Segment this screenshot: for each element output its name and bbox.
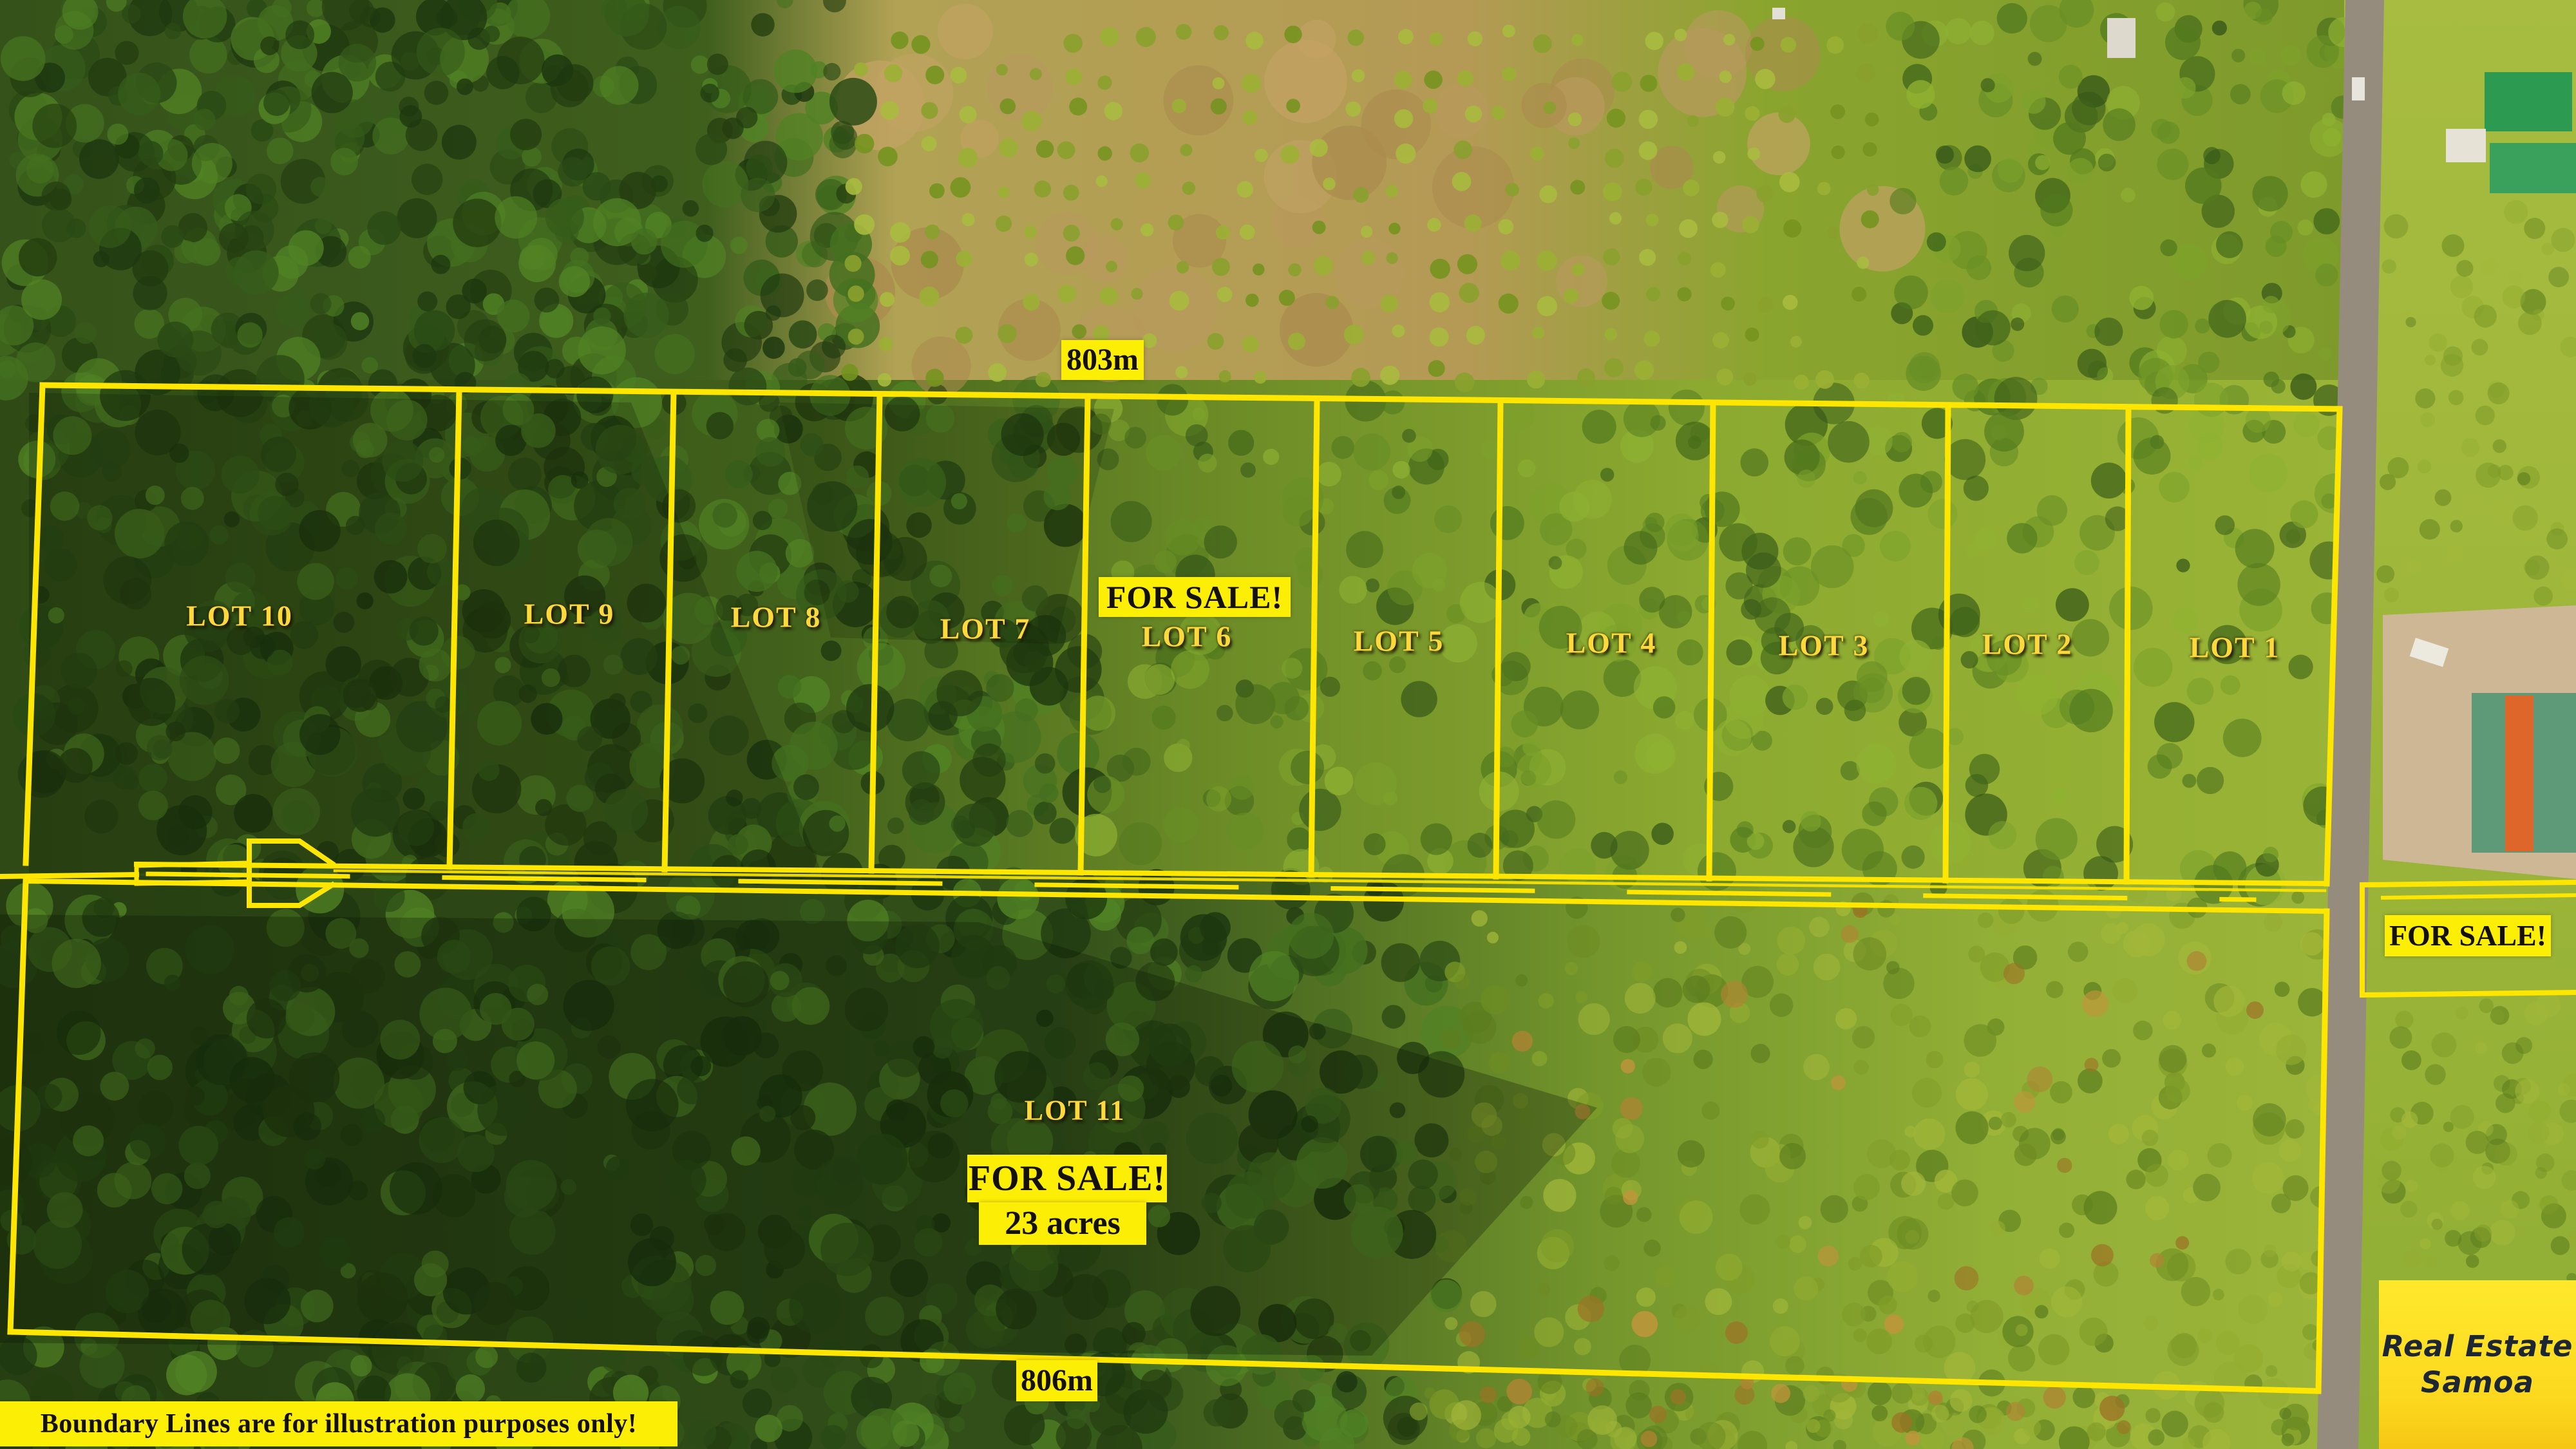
roadside-for-sale-banner: FOR SALE! [2385, 915, 2551, 956]
lot-6-label: LOT 6 [1142, 620, 1233, 654]
building-roof-3 [1772, 8, 1785, 19]
building-roof [2446, 129, 2486, 162]
aerial-photo: 803m 806m LOT 10 LOT 9 LOT 8 LOT 7 LOT 6… [0, 0, 2576, 1449]
lot-5-label: LOT 5 [1354, 624, 1444, 658]
lot-11-label: LOT 11 [1025, 1094, 1126, 1127]
lot-11-area-label: 23 acres [979, 1202, 1146, 1245]
building-orange-stripe [2505, 696, 2533, 851]
lot-7-label: LOT 7 [940, 612, 1031, 646]
sports-field [2485, 72, 2572, 131]
boundary-disclaimer: Boundary Lines are for illustration purp… [0, 1401, 677, 1446]
brand-name-line1: Real Estate [2382, 1329, 2573, 1365]
lot-6-for-sale-banner: FOR SALE! [1099, 577, 1291, 617]
lot-8-label: LOT 8 [731, 600, 822, 634]
brand-name-line2: Samoa [2421, 1365, 2534, 1401]
lot-2-label: LOT 2 [1982, 627, 2073, 661]
building-roof-2 [2107, 18, 2136, 58]
lot-10-label: LOT 10 [186, 599, 293, 633]
lot-11-for-sale-banner: FOR SALE! [967, 1155, 1167, 1202]
top-width-label: 803m [1061, 340, 1144, 380]
brand-logo: Real Estate Samoa [2379, 1280, 2576, 1449]
lot-9-label: LOT 9 [524, 597, 615, 631]
bottom-width-label: 806m [1016, 1360, 1097, 1401]
lot-3-label: LOT 3 [1779, 629, 1870, 663]
aerial-photo-canvas [0, 0, 2576, 1449]
lot-1-label: LOT 1 [2190, 630, 2280, 665]
lot-4-label: LOT 4 [1566, 626, 1657, 660]
sports-field-2 [2490, 143, 2576, 193]
vehicle-on-road [2352, 77, 2365, 100]
